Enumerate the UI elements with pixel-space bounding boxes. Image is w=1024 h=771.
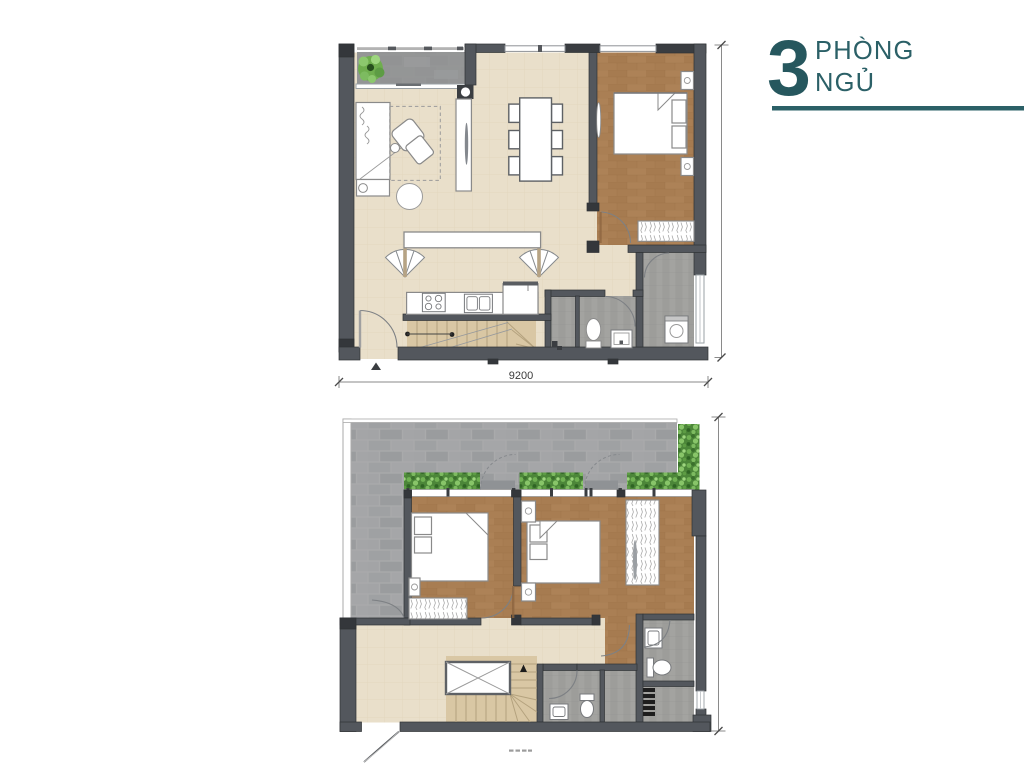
svg-text:9200: 9200 <box>509 370 533 382</box>
svg-text:PHÒNG: PHÒNG <box>815 36 915 65</box>
svg-text:NGỦ: NGỦ <box>815 67 875 97</box>
svg-text:3: 3 <box>767 23 811 112</box>
